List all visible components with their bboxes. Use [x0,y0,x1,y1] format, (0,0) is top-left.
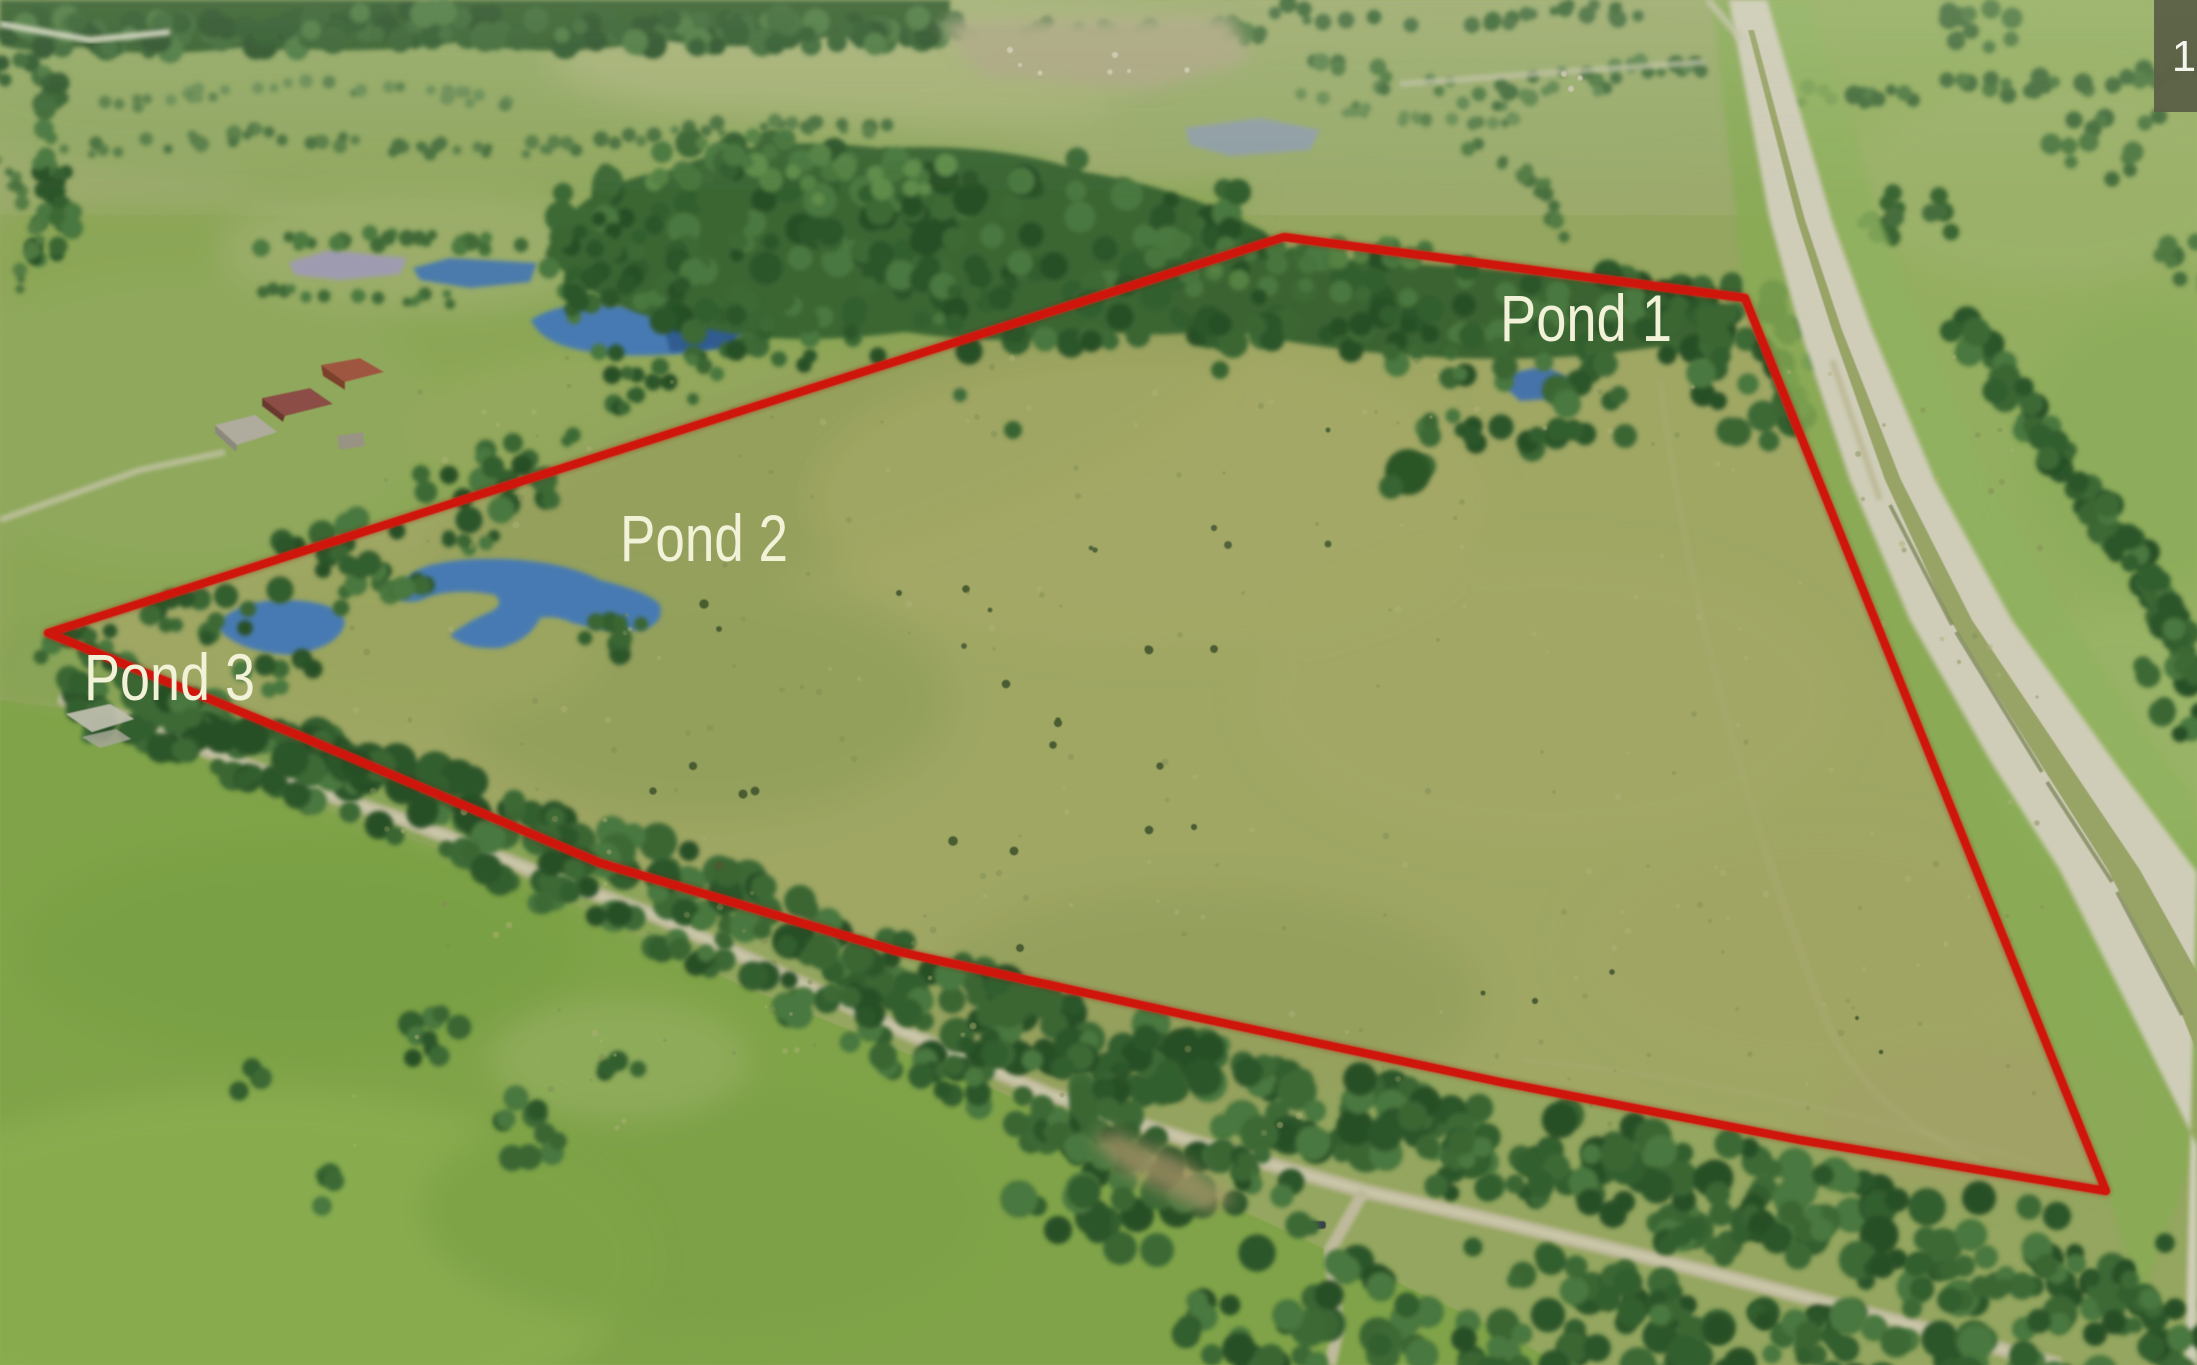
svg-text:Pond 2: Pond 2 [620,501,788,575]
svg-text:Pond 1: Pond 1 [1500,281,1672,355]
svg-text:1: 1 [2172,32,2196,81]
svg-text:Pond 3: Pond 3 [84,640,255,714]
